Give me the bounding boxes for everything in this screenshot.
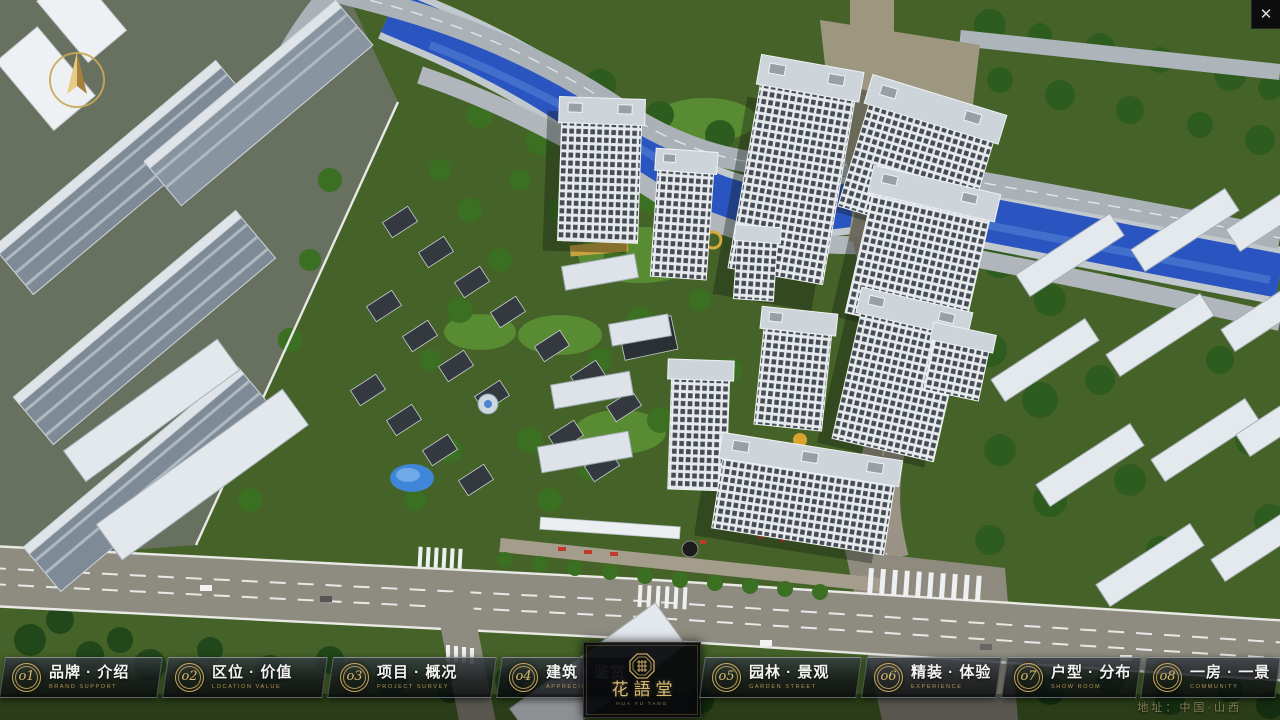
nav-item-subtitle: COMMUNITY [1190,683,1240,689]
compass-north-indicator [44,44,110,114]
nav-item-label: 园林 · 景观 [749,665,858,681]
number-badge-icon: o1 [12,663,41,692]
nav-item-label: 精装 · 体验 [911,665,994,681]
nav-item-landscape[interactable]: o5 园林 · 景观 GARDEN STREET [699,657,862,698]
number-badge-icon: o5 [712,663,741,692]
number-badge-icon: o7 [1014,663,1043,692]
project-logo-subtitle: HUA YU TANG [616,701,668,706]
nav-item-subtitle: LOCATION VALUE [212,683,281,689]
nav-item-subtitle: EXPERIENCE [911,683,962,689]
nav-item-label: 户型 · 分布 [1051,665,1132,681]
application-window: ✕ o1 品牌 · 介绍 BRAND SUPPORT o2 区位 · 价值 [0,0,1280,720]
nav-item-label: 一房 · 一景 [1190,665,1270,681]
number-badge-icon: o3 [340,663,369,692]
nav-item-subtitle: GARDEN STREET [749,683,817,689]
nav-item-interior-experience[interactable]: o6 精装 · 体验 EXPERIENCE [861,657,1001,698]
nav-item-subtitle: BRAND SUPPORT [49,683,117,689]
nav-item-label: 品牌 · 介绍 [49,665,159,681]
nav-group-right: o5 园林 · 景观 GARDEN STREET o6 精装 · 体验 EXPE… [702,657,1278,698]
number-badge-icon: o2 [175,663,204,692]
nav-group-left: o1 品牌 · 介绍 BRAND SUPPORT o2 区位 · 价值 LOCA… [2,657,578,698]
nav-item-subtitle: PROJECT SURVEY [377,683,449,689]
nav-item-label: 项目 · 概况 [377,665,493,681]
nav-item-floorplan-distribution[interactable]: o7 户型 · 分布 SHOW ROOM [1001,657,1141,698]
logo-seal-icon [629,653,655,679]
masterplan-3d-view[interactable] [0,0,1280,720]
project-logo-panel[interactable]: 花語堂 HUA YU TANG [583,642,701,718]
number-badge-icon: o4 [509,663,538,692]
nav-item-room-view[interactable]: o8 一房 · 一景 COMMUNITY [1140,657,1280,698]
project-address: 地址：中国·山西 [1137,699,1242,715]
number-badge-icon: o8 [1153,663,1182,692]
close-icon: ✕ [1260,7,1273,22]
nav-item-project-overview[interactable]: o3 项目 · 概况 PROJECT SURVEY [327,657,497,698]
number-badge-icon: o6 [874,663,903,692]
nav-item-label: 区位 · 价值 [212,665,324,681]
nav-item-location-value[interactable]: o2 区位 · 价值 LOCATION VALUE [162,657,327,698]
close-button[interactable]: ✕ [1251,0,1280,29]
project-logo-name: 花語堂 [607,681,678,699]
nav-item-subtitle: SHOW ROOM [1051,683,1101,689]
nav-item-brand-intro[interactable]: o1 品牌 · 介绍 BRAND SUPPORT [0,657,163,698]
